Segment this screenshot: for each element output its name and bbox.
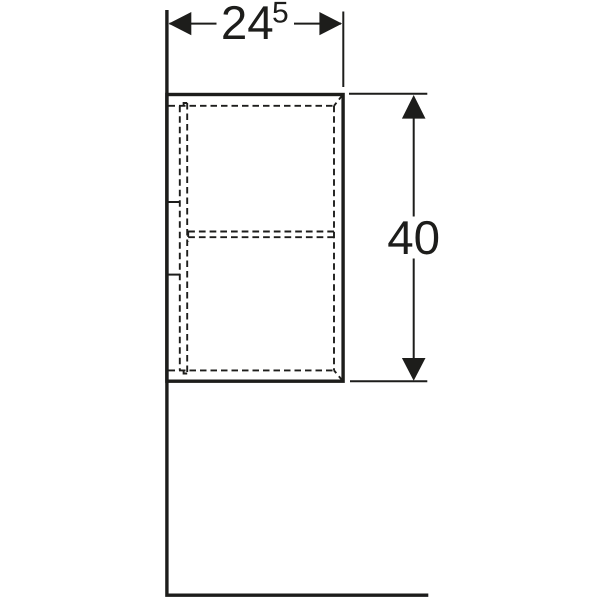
svg-text:40: 40 bbox=[387, 212, 440, 265]
svg-text:5: 5 bbox=[272, 0, 289, 30]
svg-text:24: 24 bbox=[221, 0, 274, 50]
